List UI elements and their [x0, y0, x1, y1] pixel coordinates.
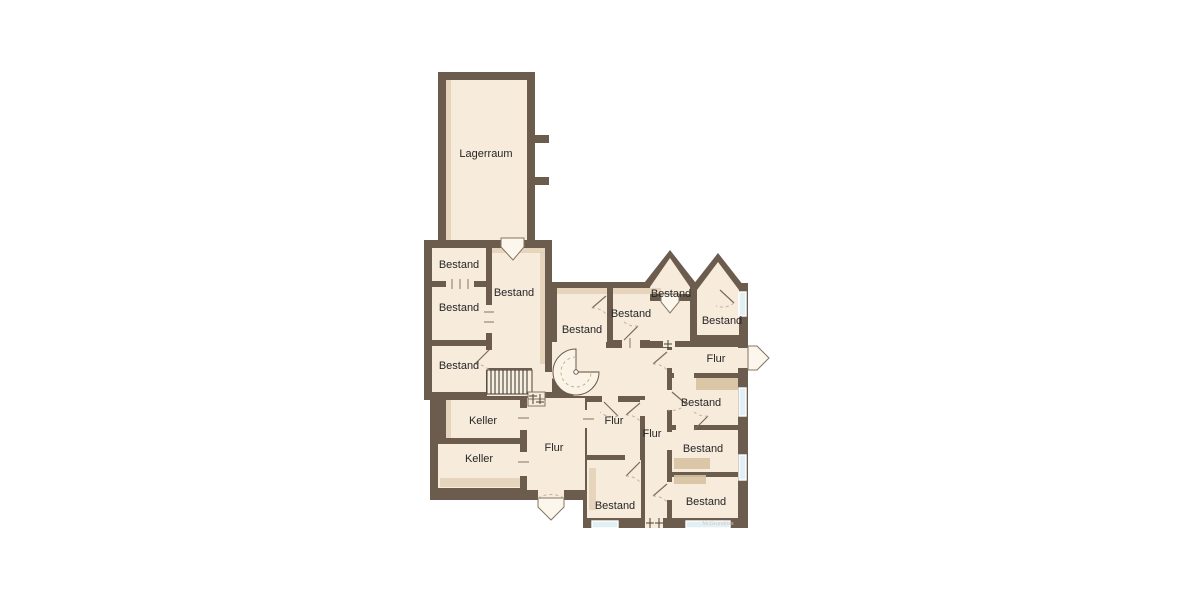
closet: [674, 475, 706, 484]
closet: [696, 378, 738, 390]
doorway: [592, 342, 606, 348]
doorway: [667, 350, 672, 368]
label-bestand: Bestand: [439, 259, 479, 271]
doorway: [622, 340, 640, 348]
window: [592, 521, 618, 528]
doorway-exit: [738, 348, 748, 368]
room-bestand-big: [492, 248, 545, 368]
window: [739, 455, 746, 480]
room-flur-right: [672, 347, 738, 373]
label-keller: Keller: [469, 415, 497, 427]
label-bestand: Bestand: [439, 360, 479, 372]
doorway: [602, 396, 618, 402]
label-bestand: Bestand: [681, 397, 721, 409]
label-bestand: Bestand: [439, 302, 479, 314]
landing-steps: [528, 392, 545, 406]
doorway: [667, 482, 672, 500]
label-flur: Flur: [643, 428, 662, 440]
doorway: [674, 373, 694, 378]
window: [739, 292, 746, 316]
label-flur: Flur: [605, 415, 624, 427]
wall-stub-lower: [535, 177, 549, 185]
label-bestand: Bestand: [595, 500, 635, 512]
label-flur: Flur: [707, 353, 726, 365]
corridor: [645, 396, 667, 518]
floor-plan: Lagerraum Bestand Bestand Bestand Bestan…: [0, 0, 1200, 600]
label-bestand: Bestand: [611, 308, 651, 320]
doorway: [667, 432, 672, 450]
doorway: [486, 305, 492, 333]
doorway: [667, 390, 672, 410]
label-bestand: Bestand: [683, 443, 723, 455]
label-lagerraum: Lagerraum: [459, 148, 512, 160]
doorway: [545, 372, 552, 392]
doorway: [676, 425, 694, 430]
window: [739, 388, 746, 416]
doorway: [625, 455, 640, 460]
doorway: [486, 350, 492, 370]
doorway: [520, 408, 527, 430]
room-lagerraum: [446, 80, 527, 240]
doorway-exit: [538, 490, 564, 498]
canvas: Lagerraum Bestand Bestand Bestand Bestan…: [0, 0, 1200, 600]
wall-stub-upper: [535, 135, 549, 143]
doorway: [640, 400, 645, 416]
label-bestand: Bestand: [494, 287, 534, 299]
closet: [674, 458, 710, 469]
watermark: McGrundriss: [702, 521, 733, 527]
label-bestand: Bestand: [702, 315, 742, 327]
label-bestand: Bestand: [686, 496, 726, 508]
hall-upper: [598, 348, 667, 396]
label-bestand: Bestand: [651, 288, 691, 300]
label-flur: Flur: [545, 442, 564, 454]
label-keller: Keller: [465, 453, 493, 465]
door-exit-south: [538, 498, 564, 520]
straight-staircase: [487, 369, 532, 394]
door-exit-east: [748, 346, 769, 370]
doorway: [520, 452, 527, 476]
label-bestand: Bestand: [562, 324, 602, 336]
